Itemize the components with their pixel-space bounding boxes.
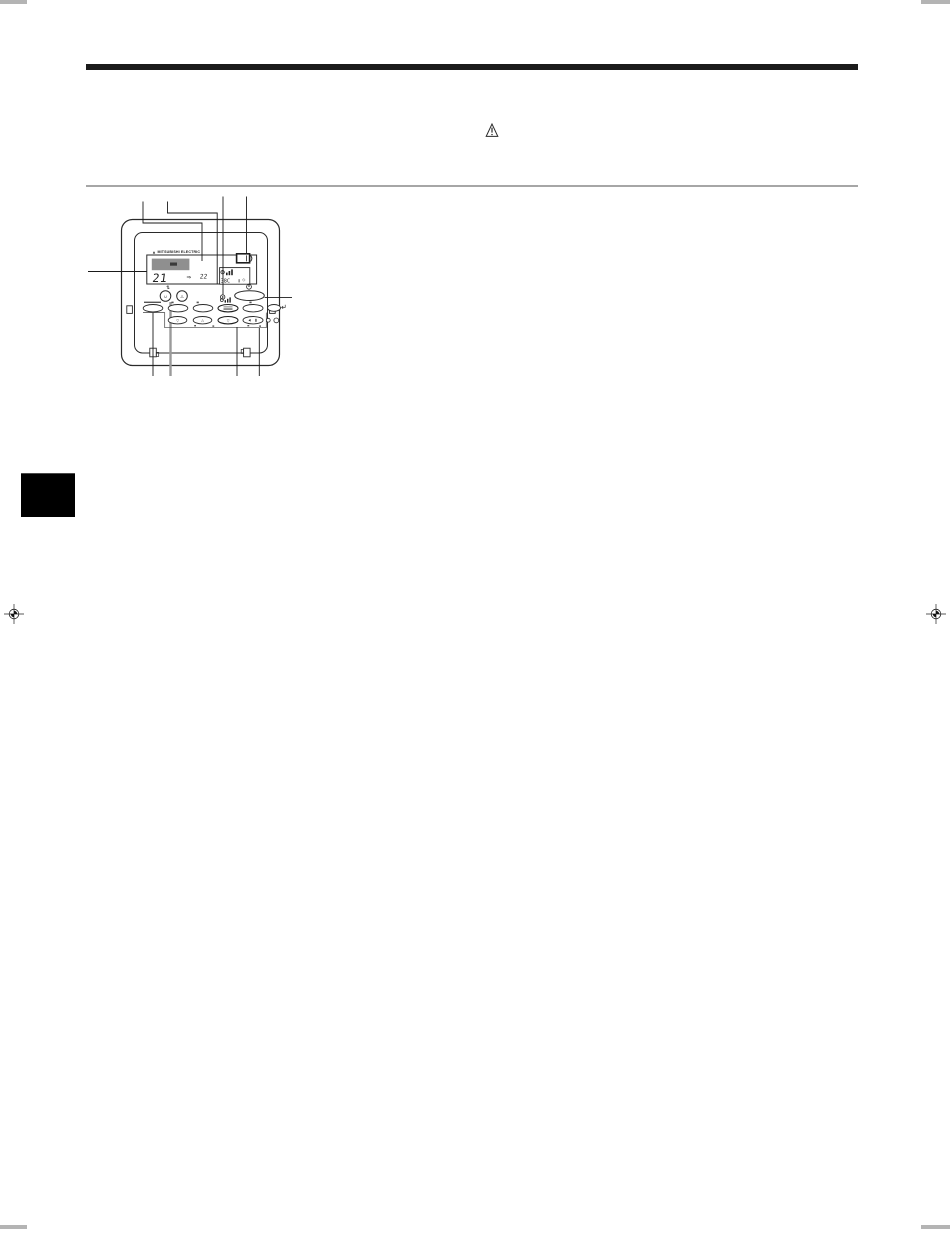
- timer-on-button: [193, 305, 213, 312]
- remote-controller-diagram: ▲ MITSUBISHI ELECTRIC 21 ⇒ 22 38C ◇: [80, 190, 300, 382]
- crop-mark-top-left: [0, 0, 27, 4]
- timer-clock-icon: ∪: [164, 294, 167, 299]
- filter-icon: ⇒: [187, 275, 192, 281]
- check-lamp: [274, 318, 279, 323]
- latch-left: [127, 306, 133, 314]
- svg-text:22: 22: [199, 274, 208, 281]
- set-temp-readout: 21: [152, 271, 169, 285]
- manual-page: ▲ MITSUBISHI ELECTRIC 21 ⇒ 22 38C ◇: [0, 0, 950, 1233]
- ventilation-button: [268, 305, 281, 312]
- check-test-button: [243, 317, 263, 324]
- crop-mark-bottom-left: [0, 1225, 27, 1229]
- section-rule: [86, 185, 858, 187]
- caution-exclamation: [491, 134, 492, 135]
- brand-text: MITSUBISHI ELECTRIC: [158, 250, 201, 254]
- air-direction-button: [243, 305, 263, 312]
- brand-mark: ▲: [152, 249, 156, 254]
- caution-triangle-icon: [480, 118, 504, 142]
- section-title-bar: [86, 64, 858, 70]
- louver-button-icon: ▽: [227, 319, 230, 323]
- louver-icon: [237, 254, 252, 263]
- ghost-temp-readout: 22: [199, 274, 208, 281]
- on-off-button: [235, 291, 265, 301]
- reset-hole: [266, 318, 270, 322]
- aux-temp-readout: 38C: [221, 278, 230, 284]
- aux-tick: [239, 279, 240, 282]
- svg-text:21: 21: [152, 271, 169, 285]
- section-tab: [21, 473, 75, 517]
- mitsubishi-logo: ▲ MITSUBISHI ELECTRIC: [152, 249, 200, 254]
- temp-up-icon: △: [201, 319, 204, 323]
- enter-arrow-icon: [282, 305, 286, 309]
- updown-icon: ⇅: [166, 285, 170, 290]
- time-select-button: [168, 305, 188, 312]
- registration-mark-left: [0, 600, 28, 628]
- temp-down-icon: ▽: [176, 319, 179, 323]
- mode-select-button: [143, 305, 163, 312]
- lcd-mode-segment: [170, 263, 177, 266]
- crop-mark-top-right: [921, 0, 950, 4]
- crop-mark-bottom-right: [921, 1225, 950, 1229]
- registration-mark-right: [922, 600, 950, 628]
